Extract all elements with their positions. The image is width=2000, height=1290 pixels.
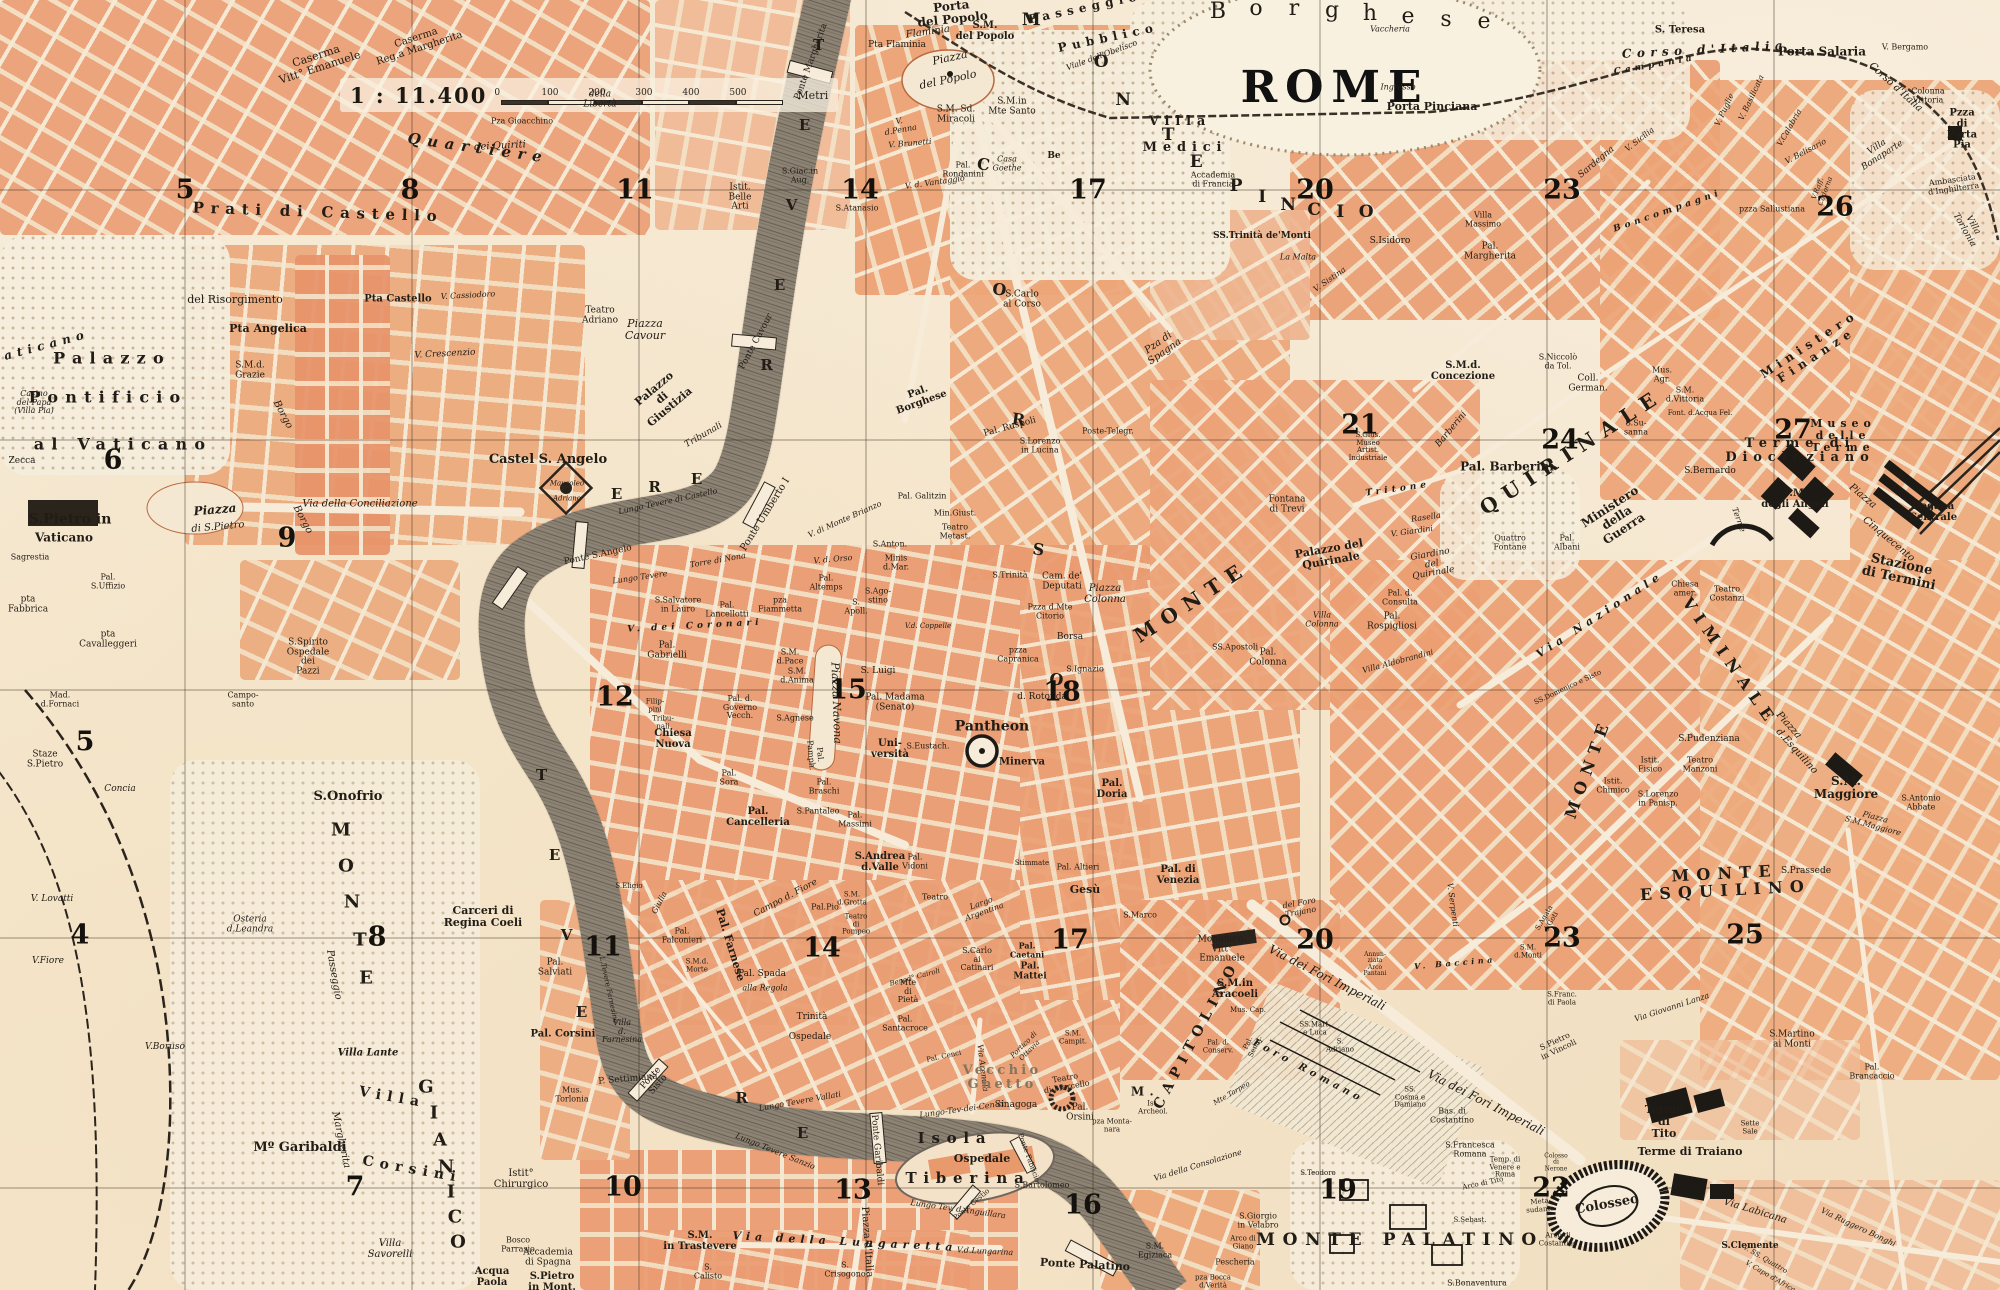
map-label: S.Pudenziana: [1678, 735, 1740, 745]
map-label: pzza Capranica: [997, 646, 1039, 663]
map-label: s: [1440, 8, 1451, 32]
map-label: S.M. Sd. Miracoli: [937, 105, 975, 124]
river-name-letter: V: [786, 197, 804, 213]
map-label: S.Isidoro: [1370, 237, 1411, 247]
grid-number: 20: [1296, 175, 1334, 206]
map-label: Pal. Santacroce: [882, 1015, 928, 1032]
grid-number: 11: [616, 175, 654, 206]
map-label: Teatro Metast.: [940, 523, 971, 540]
map-label: Teatro: [922, 894, 948, 903]
map-label: S.M. d.Grotta: [837, 891, 867, 906]
grid-number: 23: [1543, 175, 1581, 206]
map-label: S.Agnese: [776, 715, 813, 724]
map-label: S.M. Maggiore: [1814, 775, 1878, 801]
map-label: pza Bocca d.Verità: [1195, 1274, 1231, 1289]
map-label: Piazza Cavour: [625, 318, 665, 342]
map-label: S.Trinità: [992, 572, 1027, 581]
map-label: Carceri di Regina Coeli: [444, 905, 522, 929]
ponte-v-emanuele: [492, 567, 527, 610]
map-label: Borsa: [1057, 633, 1083, 643]
grid-number: 26: [1816, 192, 1854, 223]
map-label: S.Bonaventura: [1447, 1280, 1507, 1289]
grid-number: 25: [1726, 920, 1764, 951]
map-label: Mus. Cap.: [1230, 1007, 1266, 1015]
map-label: Zecca: [8, 457, 35, 467]
map-label: C: [976, 155, 998, 175]
map-label: Teatro di Pompeo: [842, 914, 870, 937]
map-label: pza Monta- nara: [1092, 1118, 1132, 1133]
map-label: S.M. Campit.: [1059, 1030, 1087, 1045]
map-label: Villa Colonna: [1305, 611, 1338, 628]
map-label: Vaticano: [35, 532, 93, 545]
map-label: pza Fiammetta: [758, 596, 802, 613]
map-label: S.Francesca Romana: [1445, 1141, 1495, 1158]
map-label: Ponte Palatino: [1040, 1257, 1131, 1274]
grid-number: 8: [368, 922, 387, 953]
map-label: Pal. Braschi: [809, 778, 840, 795]
district-borgo-south: [240, 560, 460, 680]
river-name-letter: V: [561, 927, 579, 943]
map-label: S.Lorenzo in Lucina: [1020, 437, 1061, 454]
map-label: N: [438, 1157, 463, 1176]
map-label: S.Anton.: [873, 541, 907, 550]
map-label: Isola: [918, 1130, 993, 1146]
map-label: V. di Monte Brianzo: [807, 500, 883, 540]
rome-city-map: 1 : 11.400 0100200300400500 Metri Caserm…: [0, 0, 2000, 1290]
map-label: Pal. Cancelleria: [726, 807, 790, 829]
grid-number: 5: [176, 175, 195, 206]
map-label: Istit. Belle Arti: [728, 183, 751, 212]
river-name-letter: E: [576, 1004, 594, 1020]
map-label: Ist. Archeol.: [1138, 1100, 1168, 1115]
gianicolo-park: [170, 760, 480, 1290]
map-label: S.Bartolomeo: [1015, 1182, 1070, 1191]
map-label: Medici: [1143, 141, 1228, 155]
map-label: S.M. in Trastevere: [663, 1231, 736, 1253]
map-label: Pal. Galitzin: [898, 493, 947, 502]
map-label: o: [1249, 0, 1262, 21]
map-label: S. Adriano: [1326, 1038, 1354, 1053]
river-name-letter: R: [760, 357, 779, 373]
map-label: Istit° Chirurgico: [494, 1169, 549, 1191]
map-label: Teatro Adriano: [582, 306, 618, 325]
map-label: Via Giovanni Lanza: [1633, 992, 1710, 1024]
map-label: pta Fabbrica: [8, 595, 48, 614]
map-label: Sagrestia: [11, 554, 50, 563]
map-label: Tiberina: [905, 1170, 1030, 1186]
map-label: Pal. Caetani: [1010, 941, 1044, 958]
map-label: S.Carlo ai Catinari: [961, 947, 994, 973]
map-label: Pal. Gabrielli: [647, 641, 686, 660]
map-label: pzza Sallustiana: [1739, 206, 1805, 215]
map-label: Tribunali: [684, 421, 725, 450]
map-label: Ponte Umberto I: [739, 476, 793, 553]
map-label: S.Prassede: [1781, 867, 1831, 877]
map-label: V.Fiore: [32, 957, 64, 967]
map-label: Pal. Altieri: [1057, 864, 1100, 873]
map-label: Porta Salaria: [1778, 46, 1866, 59]
grid-number: 12: [596, 682, 634, 713]
map-label: Monumen. Vitt° Emanuele: [1198, 935, 1247, 964]
map-label: S.Marco: [1123, 912, 1157, 921]
map-label: S.M.d. Concezione: [1431, 361, 1495, 383]
grid-number: 11: [584, 932, 622, 963]
map-label: Pal. Spada: [738, 970, 786, 980]
map-label: Terme: [1730, 506, 1747, 533]
river-name-letter: T: [813, 37, 831, 53]
map-label: S.Ignazio: [1066, 666, 1104, 675]
map-label: Arco di Costantino: [1539, 1232, 1577, 1247]
map-label: Palazzo di Giustizia: [630, 367, 695, 429]
map-label: S.Spirito Ospedale dei Pazzi: [287, 639, 329, 678]
map-label: S.Ago- stino: [865, 587, 891, 604]
map-label: Mad. d.Fornaci: [41, 691, 79, 708]
map-label: Piazza Colonna: [1084, 584, 1126, 606]
map-label: Via della Conciliazione: [302, 500, 417, 511]
map-label: Bas. di Costantino: [1430, 1107, 1474, 1124]
map-label: Villa Massimo: [1465, 211, 1501, 228]
map-label: S.M. d.Anima: [780, 667, 814, 684]
river-name-letter: E: [611, 486, 629, 502]
map-label: Vaccheria: [1370, 26, 1410, 35]
map-label: Trinità: [797, 1013, 828, 1023]
map-label: V.d. Coppelle: [905, 623, 951, 631]
map-label: Mus. Agr.: [1652, 366, 1672, 383]
map-label: h: [1363, 2, 1377, 26]
map-label: Cam. de' Deputati: [1042, 572, 1082, 591]
map-label: Poste-Telegr.: [1082, 428, 1134, 437]
map-label: SS.Apostoli: [1212, 644, 1258, 653]
river-name-letter: E: [799, 117, 817, 133]
map-label: Be: [1047, 152, 1060, 162]
grid-number: 5: [76, 727, 95, 758]
map-label: S.Niccolò da Tol.: [1539, 353, 1577, 370]
map-label: S.Franc. di Paola: [1547, 991, 1577, 1006]
grid-number: 15: [829, 675, 867, 706]
grid-number: 8: [401, 175, 420, 206]
map-label: G: [418, 1077, 441, 1096]
map-label: I: [1258, 188, 1274, 206]
map-label: Terme di Tito: [1645, 1104, 1683, 1140]
map-label: Ingresso: [1380, 84, 1415, 93]
map-label: Pta Flaminia: [868, 41, 926, 51]
map-label: Staze S.Pietro: [27, 750, 63, 769]
map-label: SS.Trinità de'Monti: [1213, 232, 1311, 242]
map-label: Colosseo: [1574, 1193, 1640, 1218]
map-label: Minis d.Mar.: [883, 554, 909, 571]
map-label: S.Pietro in Vincoli: [1536, 1030, 1578, 1062]
river-name-letter: E: [797, 1125, 815, 1141]
map-label: S.Lorenzo in Panisp.: [1638, 790, 1679, 807]
map-label: S.M. del Popolo: [956, 21, 1015, 43]
map-label: E: [359, 968, 381, 987]
map-label: Campo- santo: [227, 691, 258, 708]
map-label: S.Pietro in Mont.: [528, 1272, 576, 1290]
map-label: g: [1325, 0, 1339, 23]
map-label: alla Regola: [742, 985, 787, 994]
map-label: Pzza d.Mte Citorio: [1028, 603, 1073, 620]
map-label: SS. Cosma e Damiano: [1394, 1087, 1426, 1110]
map-label: pta Cavalleggeri: [79, 630, 137, 649]
map-label: S.Atanasio: [836, 205, 879, 214]
map-label: I: [447, 1182, 464, 1201]
map-label: S.Pantaleo: [797, 808, 840, 817]
map-label: Colosso di Nerone: [1544, 1153, 1568, 1172]
map-label: Pal. Rospigliosi: [1367, 612, 1417, 631]
map-label: Pza Gioacchino: [491, 118, 553, 127]
map-label: S.Salvatore in Lauro: [655, 596, 701, 613]
map-label: S.M. d.Monti: [1514, 944, 1542, 959]
scale-segment: 0: [501, 100, 548, 105]
map-label: S. Crisogono: [824, 1261, 865, 1278]
map-label: al Vaticano: [34, 435, 212, 452]
map-label: Teatro Costanzi: [1710, 585, 1745, 602]
map-label: S.Giac.in Aug.: [782, 167, 818, 184]
map-label: Via della Consolazione: [1153, 1148, 1243, 1183]
grid-number: 14: [803, 933, 841, 964]
grid-number: 27: [1774, 415, 1812, 446]
map-label: Pal. d. Governo Vecch.: [723, 695, 757, 721]
map-label: S.Martino ai Monti: [1769, 1030, 1814, 1049]
map-label: S.Andrea d.Valle: [855, 852, 905, 874]
map-label: Mausoleo di Adriano: [550, 481, 584, 504]
map-label: MONTE PALATINO: [1256, 1231, 1544, 1249]
grid-number: 19: [1319, 1175, 1357, 1206]
map-label: Castel S. Angelo: [489, 453, 607, 467]
map-label: Istit. Chimico: [1596, 777, 1629, 794]
grid-number: 7: [346, 1172, 365, 1203]
map-label: V.Boruso: [145, 1043, 185, 1053]
map-label: S.M. d.Pace: [777, 648, 804, 665]
map-label: Dogana Centrale: [1909, 502, 1957, 524]
grid-number: 9: [278, 523, 297, 554]
map-label: Filip- pini: [646, 698, 664, 713]
map-label: N: [344, 892, 369, 911]
map-label: Pal. Corsini: [531, 1030, 596, 1041]
map-label: Annun- ziata Arco Pantani: [1364, 952, 1387, 978]
grid-number: 17: [1051, 925, 1089, 956]
river-name-letter: R: [735, 1090, 754, 1106]
map-label: r: [1289, 0, 1300, 21]
map-label: S.Carlo al Corso: [1003, 290, 1041, 309]
map-label: Pal. Falconieri: [662, 927, 702, 944]
map-label: del Risorgimento: [187, 294, 283, 306]
map-label: E: [1190, 153, 1211, 171]
map-label: Palazzo: [53, 349, 171, 366]
map-label: S.Pietro in: [29, 512, 112, 527]
map-label: Accademia di Francia: [1191, 171, 1235, 188]
map-label: Pal. Borghese: [891, 379, 948, 417]
map-label: Pescheria: [1215, 1259, 1254, 1268]
map-label: S.M. degli Angeli: [1761, 489, 1828, 511]
map-label: e: [1477, 10, 1490, 34]
map-label: Mº Garibaldi: [253, 1141, 346, 1155]
map-label: S.M. d.Vittoria: [1666, 386, 1704, 403]
map-label: Minerva: [999, 758, 1045, 769]
scale-tick: 400: [682, 88, 699, 98]
map-label: Concia: [104, 785, 135, 795]
map-label: Uni- versità: [871, 739, 909, 761]
map-label: Pal. Massimi: [838, 811, 872, 828]
map-label: Lungo Tevere di Castello: [618, 487, 719, 516]
map-label: Pal. Albani: [1554, 534, 1580, 551]
map-label: Fontana di Trevi: [1268, 495, 1305, 514]
map-label: S.Bernardo: [1684, 467, 1736, 477]
grid-number: 24: [1541, 425, 1579, 456]
map-label: A: [433, 1130, 455, 1149]
map-label: Teatro Manzoni: [1683, 756, 1718, 773]
map-label: Pal. Sora: [720, 769, 739, 786]
map-label: Coll. German.: [1568, 374, 1607, 393]
map-label: Porta Pinciana: [1387, 101, 1478, 113]
map-label: Pal. Lancellotti: [705, 601, 748, 618]
map-label: Pta Castello: [364, 295, 431, 306]
scale-segment: 400: [689, 100, 736, 105]
map-label: Pzza di Porta Pia: [1943, 108, 1981, 151]
map-label: Sette Sale: [1741, 1120, 1760, 1135]
grid-number: 13: [834, 1175, 872, 1206]
map-label: La Malta: [1280, 254, 1316, 263]
grid-number: 6: [104, 445, 123, 476]
map-label: S.M.in Mte Santo: [988, 97, 1035, 116]
map-label: M: [331, 820, 359, 839]
map-label: Pal. Altemps: [809, 574, 842, 591]
grid-number: 20: [1296, 925, 1334, 956]
map-label: V. Lovatti: [31, 895, 74, 905]
scale-segment: 500: [736, 100, 783, 105]
map-label: S.M.d. Grazie: [235, 361, 265, 380]
scale-segment: 300: [642, 100, 689, 105]
map-label: V. Bergamo: [1882, 44, 1928, 53]
map-label: O: [338, 856, 362, 875]
map-label: S: [1032, 540, 1053, 560]
map-label: Colonna Vittoria: [1911, 87, 1944, 104]
river-name-letter: T: [536, 767, 554, 783]
map-label: Pal. Mattei: [1013, 962, 1046, 981]
map-label: Pal. S.Uffizio: [91, 573, 125, 590]
map-label: Villa d. Farnesina: [602, 1019, 642, 1045]
grid-number: 22: [1532, 1173, 1570, 1204]
map-label: Pantheon: [955, 719, 1029, 734]
grid-number: 21: [1341, 410, 1379, 441]
map-label: Pta Angelica: [229, 323, 307, 335]
map-label: Vecchio Ghetto: [963, 1064, 1042, 1092]
map-label: Pal. Vidoni: [902, 853, 928, 870]
map-label: S.Eustach.: [907, 743, 950, 752]
map-label: Pal. Doria: [1097, 779, 1128, 801]
map-label: SS.Mart. e Luca: [1299, 1021, 1330, 1036]
map-label: Gesù: [1070, 884, 1101, 896]
grid-number: 10: [604, 1172, 642, 1203]
river-name-letter: E: [774, 277, 792, 293]
map-label: S.M.d. Morte: [686, 958, 709, 973]
map-label: S. Calisto: [694, 1263, 722, 1280]
grid-number: 14: [841, 175, 879, 206]
map-label: Pal. Pamph.: [805, 739, 825, 771]
map-label: Casino del Papa (Villa Pia): [14, 390, 54, 416]
scale-tick: 500: [729, 88, 746, 98]
map-label: Terme di Traiano: [1638, 1146, 1743, 1158]
map-label: Pal. Salviati: [538, 958, 572, 977]
river-name-letter: E: [549, 847, 567, 863]
map-label: O: [1359, 203, 1381, 221]
map-label: C: [448, 1207, 470, 1226]
map-label: Font. d.Acqua Fel.: [1668, 410, 1733, 418]
map-label: Ospedale: [789, 1033, 831, 1043]
map-label: S.M. Egiziaca: [1138, 1242, 1172, 1259]
map-label: S.Antonio Abbate: [1901, 794, 1940, 811]
map-label: della Libertà: [583, 90, 616, 109]
map-label: S.Giorgio in Velabro: [1237, 1212, 1278, 1229]
grid-number: 16: [1064, 1190, 1102, 1221]
river-name-letter: R: [648, 479, 667, 495]
scale-tick: 100: [541, 88, 558, 98]
map-label: Min.Giust.: [934, 510, 976, 519]
map-label: Osteria d.Leandra: [227, 915, 274, 934]
map-label: S.Onofrio: [314, 790, 383, 804]
map-label: I: [430, 1103, 447, 1122]
grid-number: 23: [1543, 923, 1581, 954]
map-label: Villa Lante: [338, 1049, 399, 1060]
grid-number: 18: [1043, 677, 1081, 708]
map-label: B: [1210, 0, 1226, 24]
grid-number: 4: [71, 920, 90, 951]
river-name-letter: E: [691, 471, 709, 487]
map-label: Tribu- nali: [652, 715, 674, 730]
map-label: S.Eligio: [615, 883, 642, 891]
map-label: Mus. Torlonia: [555, 1086, 588, 1103]
map-label: Villa Savorelli: [368, 1239, 413, 1261]
map-label: Pal. d. Conserv.: [1203, 1039, 1234, 1054]
map-label: Quattro Fontane: [1494, 534, 1527, 551]
map-label: Istit. Fisico: [1638, 756, 1662, 773]
map-label: Chiesa Nuova: [654, 729, 692, 751]
map-label: Pal. di Venezia: [1157, 865, 1200, 887]
scale-tick: 300: [635, 88, 652, 98]
map-label: Arco di Giano: [1230, 1235, 1255, 1250]
map-label: Villa: [1149, 115, 1211, 129]
scale-tick: 0: [494, 88, 500, 98]
map-label: Accademia di Spagna: [523, 1248, 573, 1267]
map-label: Pal.Pio: [811, 904, 839, 913]
map-label: I: [1336, 203, 1352, 221]
map-label: Pal. d. Consulta: [1382, 589, 1418, 606]
map-label: Pal. Orsini: [1066, 1103, 1094, 1122]
map-label: Passeggio: [1027, 0, 1143, 26]
map-label: S. Teresa: [1655, 26, 1705, 37]
map-label: Pal. Madama (Senato): [865, 693, 924, 712]
map-label: N: [1115, 91, 1138, 109]
map-label: Acqua Paola: [475, 1267, 510, 1289]
map-label: Pal. Margherita: [1464, 242, 1516, 261]
scale-bar-segments: 0100200300400500: [501, 85, 783, 105]
grid-number: 17: [1069, 175, 1107, 206]
map-label: Ospedale: [954, 1153, 1010, 1165]
scale-ratio: 1 : 11.400: [350, 83, 487, 108]
map-label: Stimmate: [1015, 860, 1049, 868]
map-label: Pal. Brancaccio: [1849, 1063, 1894, 1080]
map-label: O: [450, 1232, 474, 1251]
map-label: S.Sebast.: [1454, 1217, 1487, 1225]
